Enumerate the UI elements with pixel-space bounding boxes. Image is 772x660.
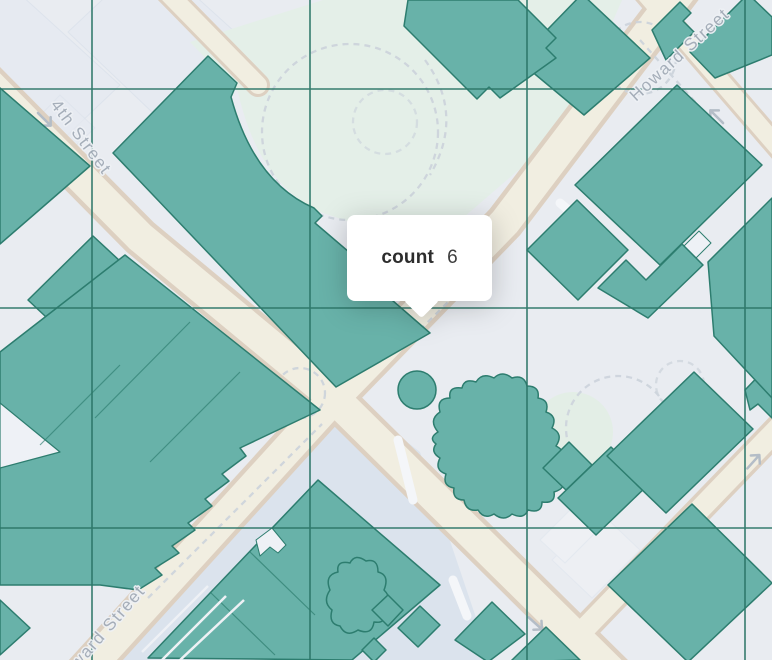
map-viewport[interactable]: 4th Street Howard Street Howard Street c… bbox=[0, 0, 772, 660]
map-canvas[interactable]: 4th Street Howard Street Howard Street bbox=[0, 0, 772, 660]
